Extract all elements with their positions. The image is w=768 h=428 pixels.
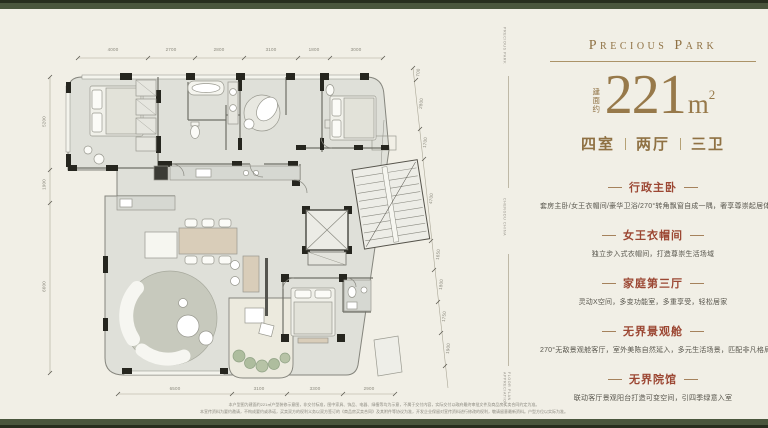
master-bathtub bbox=[188, 81, 224, 95]
dim-label: 1900 bbox=[42, 165, 47, 205]
legal-disclaimer: 本户型图为建面约221㎡户型装修示意图，非交付标准，图中家具、饰品、电器、绿植等… bbox=[30, 402, 738, 416]
divider-line bbox=[508, 76, 509, 188]
area-figure: 建面约 221 m2 bbox=[540, 66, 766, 122]
brand-logo: Precious Park bbox=[540, 38, 766, 54]
double-vanity bbox=[228, 82, 238, 124]
dim-label: 3000 bbox=[336, 47, 376, 52]
room-layout: 四室两厅三卫 bbox=[540, 133, 766, 154]
dim-label: 1800 bbox=[294, 47, 334, 52]
feature-courtyard: 无界院馆 联动客厅景观阳台打造可变空间，引四季绿意入室 bbox=[540, 371, 766, 403]
dim-label: 5200 bbox=[42, 102, 47, 142]
dash bbox=[684, 379, 698, 380]
corner-balcony bbox=[374, 336, 402, 376]
dim-label: 2800 bbox=[199, 47, 239, 52]
feature-desc: 灵动X空间，多变功能室，多重享受，轻松居家 bbox=[540, 297, 766, 307]
disclaimer-line-2: 本宣传资料为要约邀请，不构成要约或承诺，买卖双方的权利义务以双方签订的《商品房买… bbox=[30, 409, 738, 416]
feature-heading: 女王衣帽间 bbox=[540, 227, 766, 243]
bottom-right-bathroom bbox=[344, 280, 371, 311]
dim-label: 2900 bbox=[349, 386, 389, 391]
dim-label: 6600 bbox=[42, 267, 47, 307]
dash bbox=[602, 283, 616, 284]
feature-heading: 无界景观舱 bbox=[540, 323, 766, 339]
dash bbox=[684, 187, 698, 188]
feature-desc: 270°无敌景观舱客厅，室外美陈自然延入，多元生活场景，匹配非凡格局 bbox=[540, 345, 766, 355]
dash bbox=[608, 379, 622, 380]
watermark-top: PRECIOUS PARK bbox=[502, 27, 506, 69]
feature-heading: 行政主卧 bbox=[540, 179, 766, 195]
divider-line bbox=[508, 254, 509, 366]
dim-label: 2700 bbox=[151, 47, 191, 52]
feature-heading: 无界院馆 bbox=[540, 371, 766, 387]
bottom-right-bed bbox=[291, 288, 335, 343]
area-prefix: 建面约 bbox=[591, 88, 602, 114]
dim-label: 6500 bbox=[155, 386, 195, 391]
layout-separator bbox=[680, 138, 681, 150]
dash bbox=[602, 331, 616, 332]
dim-label: 4000 bbox=[93, 47, 133, 52]
feature-title: 家庭第三厅 bbox=[623, 275, 683, 291]
feature-view-cabin: 无界景观舱 270°无敌景观舱客厅，室外美陈自然延入，多元生活场景，匹配非凡格局 bbox=[540, 323, 766, 355]
feature-closet: 女王衣帽间 独立步入式衣帽间，打造尊崇生活场域 bbox=[540, 227, 766, 259]
dim-label: 3100 bbox=[239, 386, 279, 391]
dash bbox=[608, 187, 622, 188]
feature-title: 无界院馆 bbox=[629, 371, 677, 387]
area-value: 221 bbox=[605, 70, 686, 122]
dash bbox=[602, 235, 616, 236]
feature-title: 无界景观舱 bbox=[623, 323, 683, 339]
living-room bbox=[123, 271, 217, 365]
dim-label: 3100 bbox=[251, 47, 291, 52]
feature-list: 行政主卧 套房主卧/女王衣帽间/豪华卫浴/270°转角飘窗自成一隅，奢享尊崇起居… bbox=[540, 179, 766, 403]
dash bbox=[690, 235, 704, 236]
floor-plan-drawing bbox=[36, 20, 510, 410]
feature-third-hall: 家庭第三厅 灵动X空间，多变功能室，多重享受，轻松居家 bbox=[540, 275, 766, 307]
layout-halls: 两厅 bbox=[636, 136, 670, 153]
feature-master-suite: 行政主卧 套房主卧/女王衣帽间/豪华卫浴/270°转角飘窗自成一隅，奢享尊崇起居… bbox=[540, 179, 766, 211]
feature-desc: 独立步入式衣帽间，打造尊崇生活场域 bbox=[540, 249, 766, 259]
layout-rooms: 四室 bbox=[581, 136, 615, 153]
area-unit-sup: 2 bbox=[709, 87, 716, 102]
floor-plan-panel: 4000 2700 2800 3100 1800 3000 5200 1900 … bbox=[36, 20, 510, 410]
watermark-middle: CHENGDU CHINA bbox=[502, 198, 506, 246]
dim-label: 3300 bbox=[295, 386, 335, 391]
poster-page: 4000 2700 2800 3100 1800 3000 5200 1900 … bbox=[0, 0, 768, 428]
info-panel: Precious Park 建面约 221 m2 四室两厅三卫 行政主卧 套房主… bbox=[540, 38, 766, 419]
area-unit-m: m bbox=[688, 89, 709, 119]
elevator bbox=[306, 210, 348, 265]
staircase bbox=[352, 160, 430, 249]
bottom-green-band bbox=[0, 419, 768, 428]
dash bbox=[690, 283, 704, 284]
top-green-band bbox=[0, 0, 768, 9]
gold-divider bbox=[550, 61, 756, 62]
master-toilet bbox=[191, 122, 200, 139]
layout-baths: 三卫 bbox=[691, 136, 725, 153]
feature-desc: 套房主卧/女王衣帽间/豪华卫浴/270°转角飘窗自成一隅，奢享尊崇起居体验 bbox=[540, 201, 766, 211]
top-right-bed bbox=[330, 96, 376, 140]
area-unit: m2 bbox=[688, 87, 716, 120]
feature-title: 女王衣帽间 bbox=[623, 227, 683, 243]
layout-separator bbox=[625, 138, 626, 150]
feature-title: 行政主卧 bbox=[629, 179, 677, 195]
dash bbox=[690, 331, 704, 332]
feature-heading: 家庭第三厅 bbox=[540, 275, 766, 291]
